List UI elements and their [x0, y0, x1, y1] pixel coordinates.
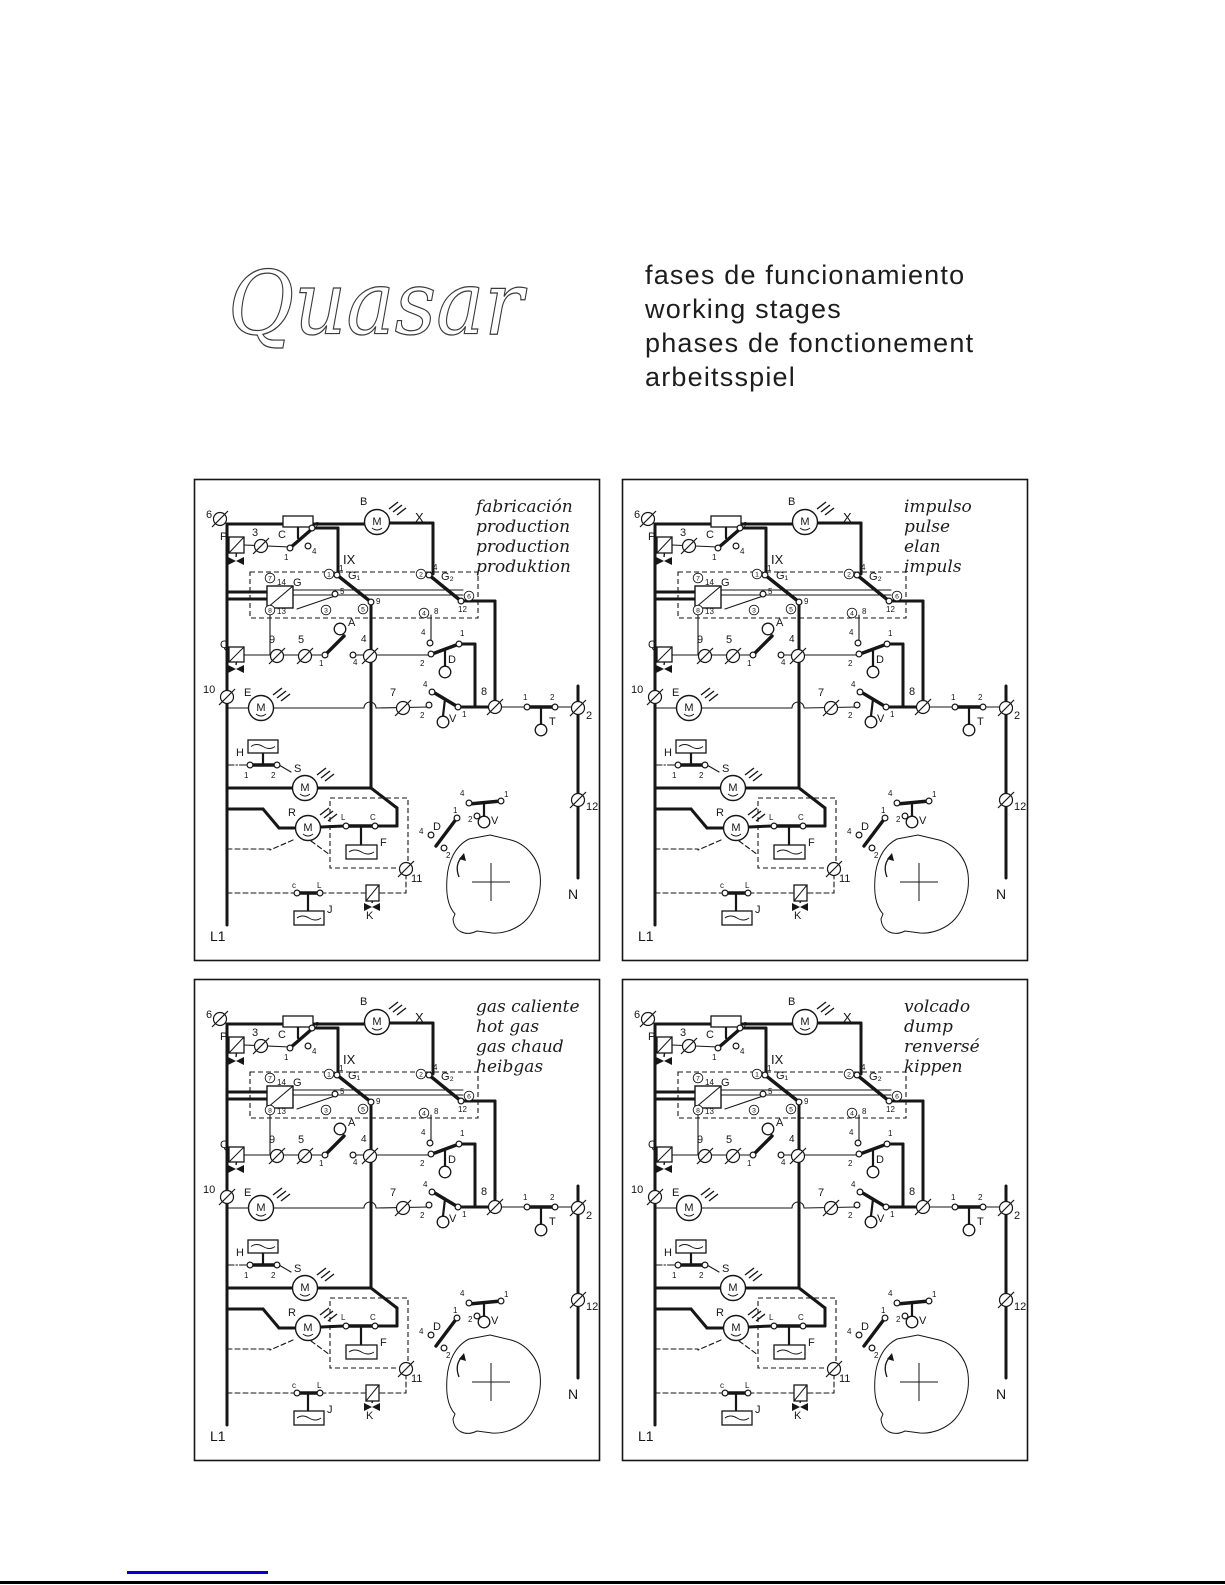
label-lG: G	[293, 577, 302, 589]
terminal	[884, 641, 890, 647]
label-cd: D	[861, 821, 869, 833]
cam-track-number: 5	[358, 604, 368, 614]
terminal	[800, 823, 806, 829]
label-d_2: 2	[420, 1159, 425, 1168]
cam-track-digit: 5	[789, 606, 793, 613]
label-lT: T	[549, 1216, 556, 1228]
cam-track-digit: 3	[324, 607, 328, 614]
terminal	[750, 652, 756, 658]
label-c_1: 1	[712, 553, 717, 562]
terminal	[322, 1152, 328, 1158]
label-l5: 5	[726, 1134, 732, 1146]
label-lT: T	[977, 716, 984, 728]
cam-track-digit: 4	[422, 610, 426, 617]
label-c_2: 2	[743, 1021, 748, 1030]
label-j_l: L	[745, 881, 750, 890]
heater-icon	[294, 911, 324, 925]
label-l11: 11	[411, 873, 422, 885]
label-a_4: 4	[781, 1158, 786, 1167]
cam-track-number: 8	[265, 1105, 275, 1115]
label-lA: A	[776, 617, 784, 629]
cam-track-number: 4	[419, 1108, 429, 1118]
terminal	[800, 1323, 806, 1329]
terminal	[332, 1091, 338, 1097]
label-cv_2: 2	[468, 1315, 473, 1324]
label-l11: 11	[839, 873, 850, 885]
label-g1_5: 5	[768, 1087, 773, 1096]
label-a_1: 1	[747, 659, 752, 668]
cam-track-number: 6	[892, 1091, 902, 1101]
label-lQ: Q	[648, 1139, 657, 1151]
cam-track-digit: 1	[755, 1071, 759, 1078]
cam-track-digit: 6	[895, 1093, 899, 1100]
cam-track-number: 6	[464, 591, 474, 601]
label-d_4: 4	[849, 1128, 854, 1137]
label-c_2: 2	[315, 521, 320, 530]
label-h_1: 1	[244, 1271, 249, 1280]
heater-icon	[722, 911, 752, 925]
heater-icon	[248, 1240, 278, 1253]
label-lT: T	[549, 716, 556, 728]
panel-title-line: kippen	[904, 1057, 963, 1077]
label-l6: 6	[206, 509, 212, 521]
label-g2_12: 12	[886, 1105, 895, 1114]
label-lB: B	[360, 996, 367, 1008]
label-lN: N	[996, 1386, 1006, 1402]
label-lK: K	[366, 910, 374, 922]
heater-icon	[774, 845, 805, 859]
label-l14: 14	[277, 578, 286, 587]
label-lR: R	[716, 807, 724, 819]
heater-icon	[346, 845, 377, 859]
terminal	[552, 1204, 558, 1210]
label-l13: 13	[705, 607, 714, 616]
terminal	[332, 591, 338, 597]
label-j_c: c	[292, 1381, 296, 1390]
cam-track-number: 4	[847, 608, 857, 618]
terminal	[456, 641, 462, 647]
terminal	[854, 702, 860, 708]
label-v_2: 2	[848, 1211, 853, 1220]
motor-letter: M	[303, 822, 312, 834]
motor-letter: M	[731, 1322, 740, 1334]
motor-letter: M	[256, 702, 265, 714]
label-g1: G₁	[776, 1070, 789, 1082]
cam-track-digit: 2	[419, 1071, 423, 1078]
page-edge-line	[0, 1581, 1225, 1584]
label-cv_1: 1	[504, 1290, 509, 1299]
cam-track-number: 5	[786, 1104, 796, 1114]
terminal	[857, 1189, 863, 1195]
label-lE: E	[244, 1187, 251, 1199]
label-l10: 10	[203, 684, 215, 696]
label-l2: 2	[1014, 1210, 1020, 1222]
cam-track-digit: 5	[361, 1106, 365, 1113]
cam-track-number: 5	[358, 1104, 368, 1114]
cam-track-number: 3	[749, 1105, 759, 1115]
label-l2: 2	[586, 1210, 592, 1222]
label-c_2: 2	[315, 1021, 320, 1030]
label-l12: 12	[1014, 801, 1026, 813]
label-l11: 11	[839, 1373, 850, 1385]
label-tt_1: 1	[523, 1193, 528, 1202]
panel-title-line: production	[476, 537, 570, 557]
terminal	[455, 704, 461, 710]
label-a_4: 4	[353, 1158, 358, 1167]
label-l4: 4	[361, 634, 367, 645]
label-cv_2: 2	[468, 815, 473, 824]
program-relay-icon	[695, 1086, 721, 1108]
terminal	[372, 823, 378, 829]
label-lE: E	[672, 1187, 679, 1199]
label-tt_1: 1	[523, 693, 528, 702]
terminal	[733, 543, 739, 549]
label-lIX: IX	[343, 1052, 356, 1067]
label-l12: 12	[586, 801, 598, 813]
label-tt_2: 2	[978, 1193, 983, 1202]
terminal	[886, 598, 892, 604]
label-lQ: Q	[220, 639, 229, 651]
label-l5: 5	[298, 1134, 304, 1146]
terminal	[733, 1043, 739, 1049]
label-cv_2: 2	[896, 815, 901, 824]
cam-track-digit: 1	[327, 1071, 331, 1078]
panel-title-line: fabricación	[474, 497, 573, 517]
label-g1_9: 9	[376, 597, 381, 606]
indicator-lamp-icon	[478, 1316, 490, 1328]
cam-track-digit: 5	[789, 1106, 793, 1113]
cam-track-digit: 2	[419, 571, 423, 578]
label-lD: D	[876, 654, 884, 666]
cam-track-digit: 8	[696, 1107, 700, 1114]
label-lN: N	[568, 886, 578, 902]
motor-letter: M	[800, 1016, 809, 1028]
label-l14: 14	[277, 1078, 286, 1087]
label-lL1: L1	[210, 1428, 226, 1444]
heater-icon	[346, 1345, 377, 1359]
terminal	[343, 823, 349, 829]
label-l3: 3	[680, 1027, 686, 1039]
cam-track-number: 6	[892, 591, 902, 601]
label-cv_1: 1	[932, 1290, 937, 1299]
label-d_4: 4	[849, 628, 854, 637]
terminal	[454, 815, 460, 821]
label-lA: A	[348, 1117, 356, 1129]
indicator-lamp-icon	[906, 1316, 918, 1328]
label-l12: 12	[1014, 1301, 1026, 1313]
cam-track-number: 7	[693, 1073, 703, 1083]
label-lCc: C	[370, 1313, 376, 1322]
cam-track-digit: 8	[268, 1107, 272, 1114]
terminal	[883, 704, 889, 710]
label-c_4: 4	[312, 1047, 317, 1056]
terminal	[426, 1072, 432, 1078]
page-title-block: fases de funcionamiento working stages p…	[645, 258, 974, 394]
label-lK: K	[794, 1410, 802, 1422]
terminal	[675, 762, 681, 768]
label-d_1: 1	[460, 1129, 465, 1138]
label-v_4: 4	[423, 1180, 428, 1189]
terminal	[715, 545, 721, 551]
label-l9: 9	[269, 634, 275, 646]
label-lH: H	[664, 1247, 672, 1259]
label-g1_5: 5	[340, 587, 345, 596]
indicator-lamp-icon	[439, 666, 451, 678]
label-g2_8: 8	[862, 607, 867, 616]
terminal	[745, 1390, 751, 1396]
terminal	[702, 1262, 708, 1268]
label-l7: 7	[390, 687, 396, 699]
label-lA: A	[776, 1117, 784, 1129]
label-lH: H	[236, 1247, 244, 1259]
panel-title-line: pulse	[904, 517, 950, 537]
terminal	[952, 704, 958, 710]
terminal	[952, 1204, 958, 1210]
label-d_4: 4	[421, 1128, 426, 1137]
cam-track-number: 8	[693, 1105, 703, 1115]
label-h_1: 1	[244, 771, 249, 780]
cam-track-number: 1	[752, 569, 762, 579]
label-lV: V	[449, 713, 457, 725]
terminal	[368, 599, 374, 605]
label-g2_12: 12	[886, 605, 895, 614]
label-l7: 7	[818, 687, 824, 699]
terminal	[882, 1315, 888, 1321]
cam-track-digit: 6	[467, 1093, 471, 1100]
label-tt_1: 1	[951, 1193, 956, 1202]
brand-logo: Quasar	[220, 232, 535, 367]
label-l12: 12	[586, 1301, 598, 1313]
heater-icon	[676, 740, 706, 753]
terminal	[883, 1204, 889, 1210]
label-cd: D	[433, 821, 441, 833]
heater-icon	[774, 1345, 805, 1359]
link-underline[interactable]	[127, 1571, 268, 1574]
label-lIX: IX	[771, 1052, 784, 1067]
label-a_4: 4	[781, 658, 786, 667]
label-cd_2: 2	[446, 1351, 451, 1360]
indicator-lamp-icon	[865, 1216, 877, 1228]
label-g2_4: 4	[861, 1063, 866, 1072]
motor-letter: M	[684, 702, 693, 714]
label-c_4: 4	[740, 1047, 745, 1056]
panel-title-line: impuls	[904, 557, 962, 577]
label-tt_2: 2	[550, 693, 555, 702]
cam-track-number: 2	[844, 1069, 854, 1079]
label-d_2: 2	[848, 659, 853, 668]
label-l3: 3	[680, 527, 686, 539]
program-relay-icon	[695, 586, 721, 608]
program-relay-icon	[267, 1086, 293, 1108]
label-j_c: c	[720, 881, 724, 890]
label-lS: S	[294, 763, 301, 775]
label-lB: B	[360, 496, 367, 508]
label-lC: C	[706, 529, 714, 541]
label-g2: G₂	[441, 1071, 454, 1083]
label-lJ: J	[755, 904, 761, 916]
diagram-panel-gas-caliente: MMMM781352466P3C241IXBX14G131G₁594G₂128Q…	[193, 978, 601, 1462]
terminal	[466, 1300, 472, 1306]
cam-track-digit: 8	[268, 607, 272, 614]
motor-letter: M	[256, 1202, 265, 1214]
terminal	[856, 1151, 862, 1157]
label-lT: T	[977, 1216, 984, 1228]
motor-letter: M	[300, 1282, 309, 1294]
label-l13: 13	[277, 607, 286, 616]
label-d_2: 2	[420, 659, 425, 668]
label-lG: G	[721, 1077, 730, 1089]
label-tt_2: 2	[978, 693, 983, 702]
label-cv_1: 1	[504, 790, 509, 799]
cam-track-digit: 5	[361, 606, 365, 613]
label-d_1: 1	[460, 629, 465, 638]
label-g2: G₂	[441, 571, 454, 583]
terminal	[856, 651, 862, 657]
label-tt_1: 1	[951, 693, 956, 702]
label-lP: P	[220, 1031, 227, 1043]
label-c_4: 4	[312, 547, 317, 556]
label-lK: K	[366, 1410, 374, 1422]
label-v_1: 1	[462, 710, 467, 719]
panel-title-line: gas caliente	[476, 997, 580, 1017]
terminal	[427, 1140, 433, 1146]
wire-energized	[321, 1326, 344, 1327]
motor-letter: M	[731, 822, 740, 834]
terminal	[317, 1390, 323, 1396]
label-l10: 10	[631, 1184, 643, 1196]
label-l3: 3	[252, 1027, 258, 1039]
label-g2_4: 4	[433, 1063, 438, 1072]
terminal	[426, 702, 432, 708]
label-cd_1: 1	[881, 806, 886, 815]
label-cv_2: 2	[896, 1315, 901, 1324]
cam-track-digit: 4	[850, 1110, 854, 1117]
title-line-french: phases de fonctionement	[645, 326, 974, 360]
label-cv: V	[919, 1315, 927, 1327]
cam-track-number: 2	[416, 1069, 426, 1079]
indicator-lamp-icon	[867, 666, 879, 678]
label-cv_1: 1	[932, 790, 937, 799]
terminal	[466, 800, 472, 806]
label-cd_2: 2	[874, 1351, 879, 1360]
indicator-lamp-icon	[478, 816, 490, 828]
cam-track-digit: 1	[327, 571, 331, 578]
label-lCc: C	[798, 813, 804, 822]
label-v_4: 4	[851, 1180, 856, 1189]
label-lX: X	[415, 510, 424, 525]
label-c_4: 4	[740, 547, 745, 556]
label-lR: R	[288, 1307, 296, 1319]
label-v_4: 4	[851, 680, 856, 689]
terminal	[429, 1189, 435, 1195]
brand-logo-text: Quasar	[228, 252, 528, 355]
label-lN: N	[996, 886, 1006, 902]
cam-track-number: 3	[321, 605, 331, 615]
label-j_l: L	[317, 881, 322, 890]
indicator-lamp-icon	[334, 623, 346, 635]
label-v_4: 4	[423, 680, 428, 689]
label-h_2: 2	[271, 771, 276, 780]
label-lE: E	[672, 687, 679, 699]
cam-track-digit: 7	[268, 575, 272, 582]
label-a_1: 1	[319, 659, 324, 668]
terminal	[882, 815, 888, 821]
motor-letter: M	[800, 516, 809, 528]
terminal	[750, 1152, 756, 1158]
cam-track-digit: 1	[755, 571, 759, 578]
panel-title-line: impulso	[904, 497, 972, 517]
panel-title-line: hot gas	[476, 1017, 539, 1037]
label-lD: D	[448, 1154, 456, 1166]
cam-track-number: 3	[321, 1105, 331, 1115]
label-l2: 2	[586, 710, 592, 722]
label-c_1: 1	[284, 553, 289, 562]
label-l10: 10	[203, 1184, 215, 1196]
thermostat-bulb-box	[711, 1016, 741, 1027]
wire-energized	[749, 826, 772, 827]
label-h_2: 2	[699, 771, 704, 780]
label-g1_1: 1	[339, 564, 344, 573]
label-lP: P	[648, 1031, 655, 1043]
label-lL: L	[769, 813, 774, 822]
motor-letter: M	[728, 1282, 737, 1294]
terminal	[428, 651, 434, 657]
label-g1_9: 9	[376, 1097, 381, 1106]
indicator-lamp-icon	[963, 1224, 975, 1236]
cam-track-digit: 7	[696, 1075, 700, 1082]
terminal	[368, 1099, 374, 1105]
terminal	[854, 1072, 860, 1078]
panel-title-line: volcado	[904, 997, 970, 1017]
label-lS: S	[722, 763, 729, 775]
terminal	[454, 1315, 460, 1321]
title-line-english: working stages	[645, 292, 974, 326]
label-g2_12: 12	[458, 605, 467, 614]
label-g1_9: 9	[804, 1097, 809, 1106]
label-lP: P	[648, 531, 655, 543]
label-lX: X	[843, 510, 852, 525]
label-cd_4: 4	[419, 827, 424, 836]
label-h_1: 1	[672, 1271, 677, 1280]
terminal	[854, 1202, 860, 1208]
label-lL1: L1	[638, 1428, 654, 1444]
terminal	[894, 800, 900, 806]
label-l8: 8	[481, 686, 487, 698]
thermostat-bulb-box	[283, 516, 313, 527]
cam-track-digit: 4	[422, 1110, 426, 1117]
label-g1_1: 1	[339, 1064, 344, 1073]
terminal	[745, 890, 751, 896]
label-g2_8: 8	[434, 607, 439, 616]
label-lF: F	[808, 837, 815, 849]
cam-track-digit: 6	[895, 593, 899, 600]
label-a_1: 1	[747, 1159, 752, 1168]
panel-title-line: dump	[904, 1017, 953, 1037]
title-line-spanish: fases de funcionamiento	[645, 258, 974, 292]
terminal	[552, 704, 558, 710]
diagram-panel-volcado: MMMM781352466P3C241IXBX14G131G₁594G₂128Q…	[621, 978, 1029, 1462]
label-j_l: L	[317, 1381, 322, 1390]
terminal	[458, 598, 464, 604]
indicator-lamp-icon	[867, 1166, 879, 1178]
page: Quasar fases de funcionamiento working s…	[0, 0, 1225, 1585]
thermostat-bulb-box	[711, 516, 741, 527]
cam-track-digit: 7	[268, 1075, 272, 1082]
indicator-lamp-icon	[906, 816, 918, 828]
label-lJ: J	[327, 1404, 333, 1416]
label-lL: L	[341, 1313, 346, 1322]
cam-track-digit: 2	[847, 571, 851, 578]
